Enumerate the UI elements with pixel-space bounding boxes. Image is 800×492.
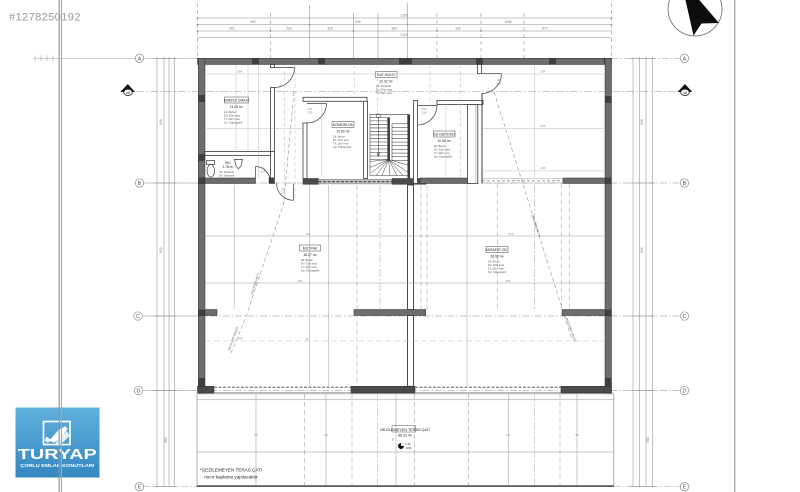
svg-text:500: 500	[646, 437, 650, 443]
svg-text:GEZİLEMEYEN TERAS ÇATI: GEZİLEMEYEN TERAS ÇATI	[380, 427, 430, 432]
svg-text:a8: a8	[683, 91, 687, 95]
svg-text:SU DEPOSU: SU DEPOSU	[433, 133, 455, 137]
svg-text:22.32 m²: 22.32 m²	[379, 79, 393, 83]
svg-text:2120: 2120	[400, 33, 407, 37]
svg-text:B: B	[683, 181, 687, 187]
svg-text:mıcır kaplama yapılacaktır: mıcır kaplama yapılacaktır	[204, 475, 258, 480]
svg-text:525: 525	[506, 279, 511, 283]
svg-text:264: 264	[541, 70, 546, 74]
svg-text:ÇATI EĞİM HATTI: ÇATI EĞİM HATTI	[531, 214, 543, 237]
svg-text:Sp: Süpürgelik: Sp: Süpürgelik	[224, 121, 243, 125]
svg-text:464: 464	[298, 279, 303, 283]
svg-text:55: 55	[575, 433, 579, 437]
svg-text:16.27 m²: 16.27 m²	[303, 253, 317, 257]
svg-text:KÖMÜRLÜK: KÖMÜRLÜK	[333, 123, 354, 127]
svg-text:361: 361	[229, 27, 235, 31]
svg-text:10.00 m²: 10.00 m²	[336, 130, 350, 134]
svg-text:2160: 2160	[400, 14, 407, 18]
svg-text:ENERJİ ODASI: ENERJİ ODASI	[224, 98, 249, 103]
svg-text:Sp: Süpürgelik: Sp: Süpürgelik	[434, 155, 453, 159]
svg-text:MİSAFİR OD.: MİSAFİR OD.	[486, 247, 508, 252]
svg-text:*GEZİLEMEYEN TERAS ÇATI: *GEZİLEMEYEN TERAS ÇATI	[200, 467, 262, 473]
svg-text:203: 203	[286, 27, 292, 31]
svg-text:205: 205	[281, 191, 286, 195]
svg-text:#1278250192: #1278250192	[9, 12, 81, 24]
svg-text:55: 55	[324, 433, 328, 437]
svg-text:525: 525	[509, 232, 514, 236]
svg-text:İKİZ DAİRE GEÇİŞİ: İKİZ DAİRE GEÇİŞİ	[565, 317, 578, 342]
svg-text:229: 229	[327, 27, 333, 31]
svg-text:672: 672	[542, 27, 548, 31]
svg-text:692: 692	[159, 247, 163, 253]
svg-text:TURYAP: TURYAP	[18, 446, 97, 463]
svg-text:Tv: Düz sıva: Tv: Düz sıva	[376, 91, 392, 95]
svg-text:525: 525	[541, 124, 546, 128]
svg-text:55: 55	[254, 433, 258, 437]
svg-text:ÇORLU EMLAK KONUTLARI: ÇORLU EMLAK KONUTLARI	[20, 463, 95, 469]
svg-text:1058: 1058	[504, 20, 511, 24]
svg-text:205: 205	[497, 82, 502, 86]
svg-text:648: 648	[159, 119, 163, 125]
svg-text:A: A	[138, 56, 142, 62]
svg-text:Sp: Süpürgelik: Sp: Süpürgelik	[301, 269, 320, 273]
svg-text:648: 648	[640, 119, 644, 125]
svg-text:C: C	[136, 314, 140, 320]
svg-text:E: E	[392, 437, 394, 441]
svg-text:283: 283	[391, 27, 397, 31]
svg-text:230: 230	[455, 27, 461, 31]
svg-text:1.78 m²: 1.78 m²	[223, 165, 234, 169]
svg-text:518: 518	[355, 20, 361, 24]
svg-text:464: 464	[306, 232, 311, 236]
svg-text:55: 55	[506, 433, 510, 437]
svg-text:D: D	[137, 389, 141, 395]
svg-text:C: C	[683, 314, 687, 320]
svg-text:11.09 m²: 11.09 m²	[230, 105, 244, 109]
svg-text:184: 184	[541, 166, 546, 170]
svg-text:692: 692	[640, 247, 644, 253]
svg-text:14: 14	[305, 337, 309, 341]
svg-text:264: 264	[238, 70, 243, 74]
svg-text:a8: a8	[126, 91, 130, 95]
svg-text:205: 205	[261, 170, 266, 174]
svg-text:10.06 m²: 10.06 m²	[437, 139, 451, 143]
svg-text:A: A	[683, 56, 687, 62]
svg-text:MUTFAK: MUTFAK	[303, 247, 318, 251]
svg-text:88.03 m²: 88.03 m²	[398, 433, 412, 437]
svg-text:464: 464	[238, 337, 243, 341]
svg-text:D: D	[683, 389, 687, 395]
svg-text:Sp: Süpürgelik: Sp: Süpürgelik	[333, 145, 352, 149]
svg-text:205: 205	[308, 111, 313, 115]
svg-text:%33: %33	[406, 446, 412, 450]
svg-text:205: 205	[422, 111, 427, 115]
svg-text:592: 592	[250, 20, 256, 24]
svg-text:Dv: Seramik: Dv: Seramik	[219, 174, 235, 178]
svg-text:B: B	[138, 181, 142, 187]
svg-text:500: 500	[164, 437, 168, 443]
svg-text:E: E	[138, 485, 142, 491]
svg-text:E: E	[683, 485, 687, 491]
